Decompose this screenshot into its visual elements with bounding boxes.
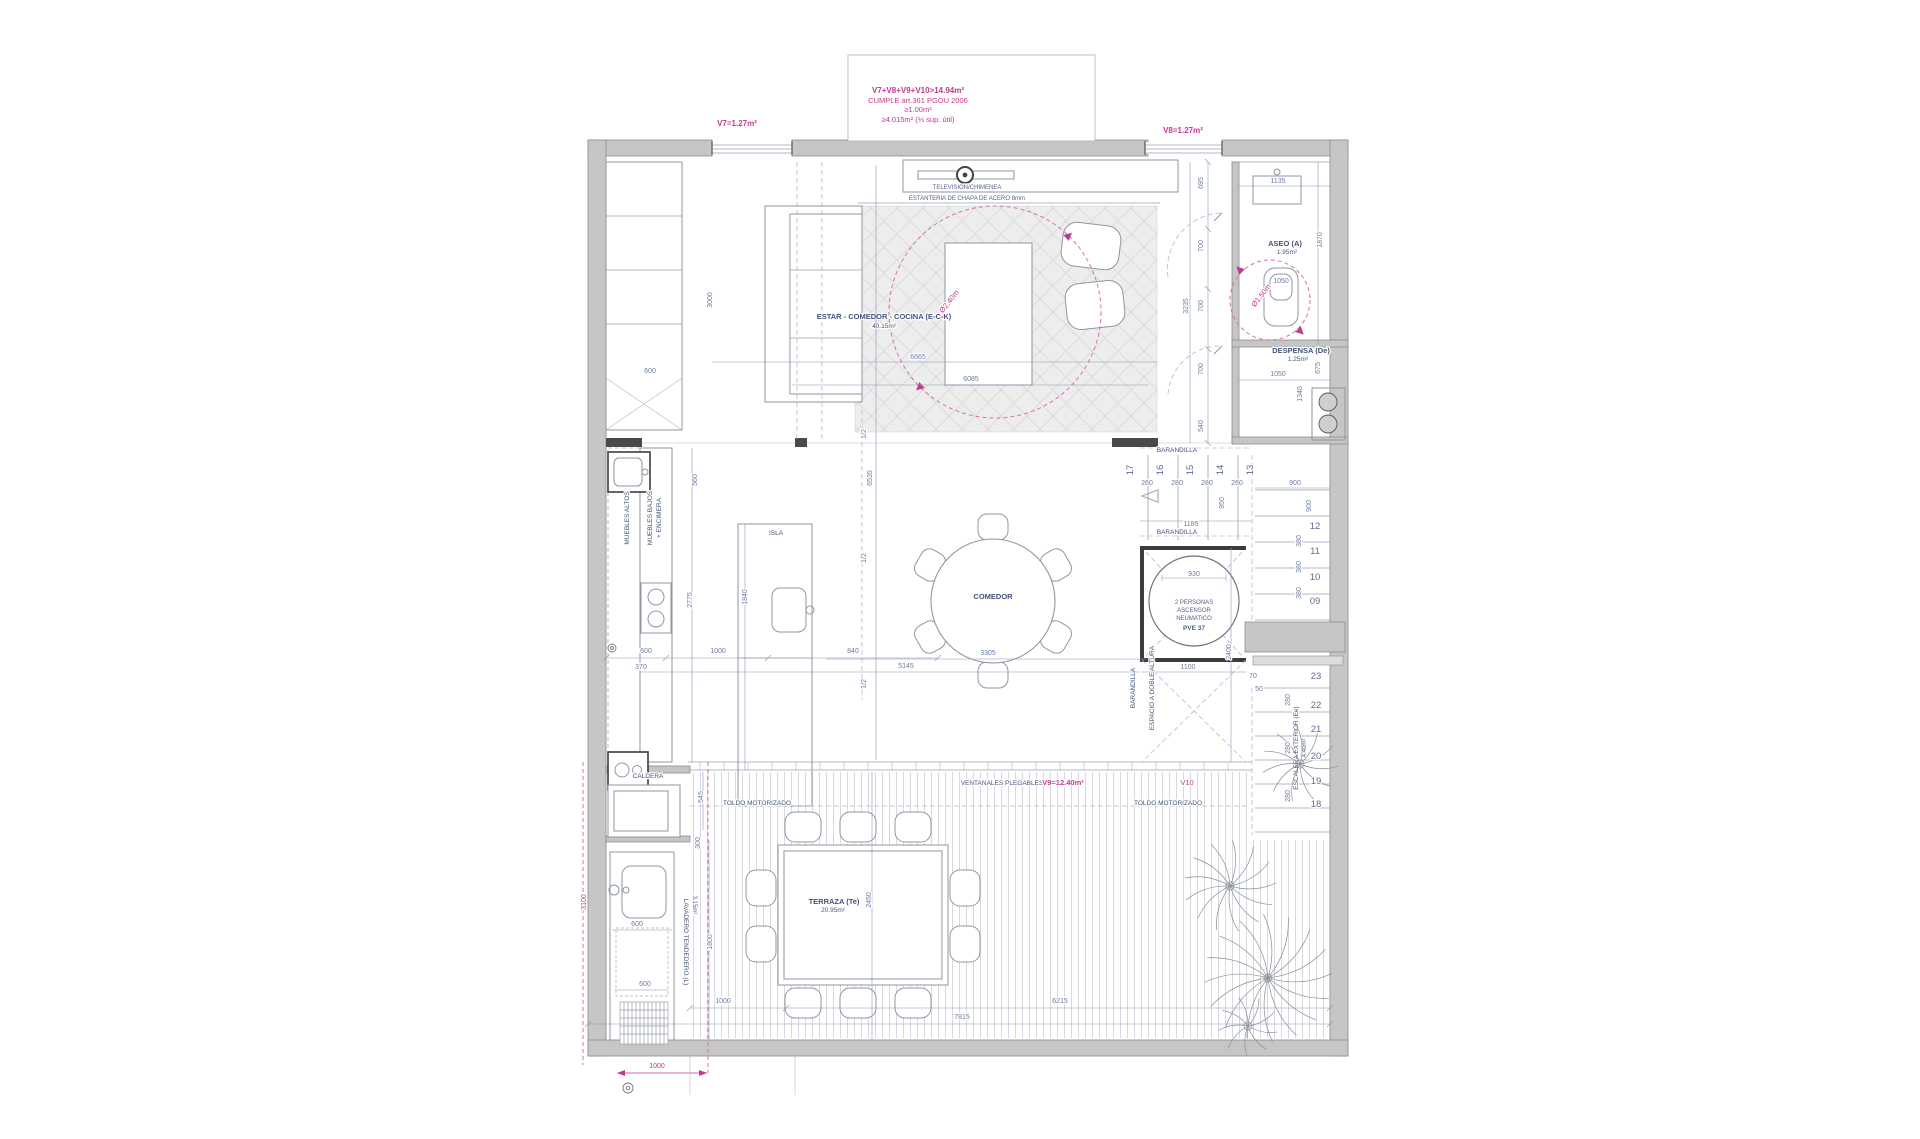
stair-number: 11 [1310,546,1320,557]
stair-number: 09 [1310,596,1321,607]
room-area-escalera: 4.40m² [1302,739,1308,758]
muebles-bajos-label: MUEBLES BAJOS [647,490,654,545]
dimension-label: 6215 [1052,998,1068,1005]
dimension-label: 1000 [710,648,726,655]
muebles-altos-label: MUEBLES ALTOS [624,491,631,545]
stair-number: 22 [1311,700,1322,711]
isla-label: ISLA [769,530,784,537]
dimension-label: 1/2 [861,429,868,439]
dimension-label: 280 [1285,742,1292,754]
dimension-label: 900 [1306,500,1313,512]
dimension-label: 600 [639,981,651,988]
stair-number: 10 [1310,572,1321,583]
room-label-aseo: ASEO (A) [1268,239,1302,248]
dimension-label: 7815 [954,1014,970,1021]
room-label-terraza: TERRAZA (Te) [809,897,860,906]
dimension-label: 695 [1198,177,1205,189]
elevator-line2: ASCENSOR [1177,608,1211,614]
barandilla-sup-label: BARANDILLA [1157,447,1198,454]
dimension-label: 2450 [866,892,873,908]
elevator-line1: 2 PERSONAS [1175,600,1213,606]
stair-number: 21 [1311,724,1322,735]
steel-shelf-label: ESTANTERIA DE CHAPA DE ACERO 8mm [909,196,1025,202]
window-v10-label: V10 [1180,778,1193,787]
dimension-label: 1340 [1297,386,1304,402]
dimension-label: 600 [631,921,643,928]
room-area-despensa: 1.25m² [1288,356,1309,363]
magenta-dim-1000 [617,1070,707,1076]
barandilla-inf-label: BARANDILLA [1157,529,1198,536]
dimension-label: 260 [1141,480,1153,487]
room-label-comedor: COMEDOR [973,592,1013,601]
stair-number: 15 [1185,465,1196,476]
dimension-label: 1050 [1270,371,1286,378]
lavadero-fixtures [609,852,674,1044]
wall-stub [1112,438,1158,447]
living-table [945,243,1032,385]
dimension-label: 280 [1285,694,1292,706]
room-label-lavadero: LAVADERO TENDEDERO (L) [682,899,689,986]
room-area-aseo: 1.95m² [1277,249,1298,256]
barandilla-vert-label: BARANDILLA [1130,667,1137,708]
dimension-label: 3100 [581,894,588,910]
dimension-label: 1800 [707,934,714,950]
dimension-label: 370 [635,664,647,671]
double-height-label: ESPACIO A DOBLE ALTURA [1149,645,1156,730]
dimension-label: 5145 [898,663,914,670]
stair-number: 23 [1311,671,1322,682]
caldera-unit [608,785,680,837]
room-label-living: ESTAR - COMEDOR - COCINA (E-C-K) [817,312,952,321]
dimension-label: 700 [1198,300,1205,312]
dimension-label: 300 [695,837,702,849]
dining-table [911,514,1075,688]
double-height-void [1142,660,1246,762]
dimension-label: 840 [847,648,859,655]
note-line4: ≥4.015m² (⅓ sup. útil) [882,115,955,124]
stair-number: 12 [1310,521,1321,532]
dimension-label: 1185 [1183,521,1198,528]
elevator-model: PVE 37 [1183,625,1205,632]
dimension-label: 930 [1188,571,1200,578]
dimension-label: 2775 [687,592,694,608]
dimension-label: 380 [1296,535,1303,547]
kitchen-island [738,524,814,806]
dimension-label: 50 [1255,686,1263,693]
dimension-label: 700 [1198,240,1205,252]
note-line2: CUMPLE art.361 PGOU 2006 [868,96,968,105]
toldo-right-label: TOLDO MOTORIZADO [1134,800,1202,807]
door-swings [1167,213,1224,394]
toldo-left-label: TOLDO MOTORIZADO [723,800,791,807]
dimension-label: 380 [1296,587,1303,599]
aseo-circle-diameter: Ø1.50m [1249,282,1273,309]
dimension-label: 1840 [742,589,749,605]
dimension-label: 260 [1231,480,1243,487]
room-area-lavadero: 3.15m² [691,896,697,915]
dimension-label: 1/2 [861,679,868,689]
window-compliance-note: V7+V8+V9+V10>14.94m² CUMPLE art.361 PGOU… [848,55,1095,141]
stair-number: 18 [1311,799,1322,810]
dimension-label: 600 [644,368,656,375]
ventanales-plegables-window [688,762,1252,770]
stair-number: 17 [1125,465,1136,476]
dimension-label: 70 [1249,673,1257,680]
floor-plan-canvas: V7+V8+V9+V10>14.94m² CUMPLE art.361 PGOU… [0,0,1920,1139]
room-label-despensa: DESPENSA (De) [1272,346,1330,355]
window-v9-label: V9=12.40m² [1042,778,1084,787]
encimera-label: + ENCIMERA [656,497,663,538]
dimension-label: 3235 [1183,298,1190,314]
stair-number: 20 [1311,751,1322,762]
caldera-label: CALDERA [633,773,664,780]
dimension-label: 280 [1171,480,1183,487]
dimension-label: 3000 [707,292,714,308]
dimension-label: 1000 [649,1063,665,1070]
elevator-line3: NEUMATICO [1176,616,1212,622]
dimension-label: 540 [1198,420,1205,432]
window-v7 [712,141,792,155]
dimension-label: 700 [1198,363,1205,375]
dimension-label: 600 [640,648,652,655]
window-v8 [1145,141,1222,155]
stair-number: 16 [1155,465,1166,476]
dimension-label: 950 [1219,497,1226,509]
dimension-label: 6535 [867,470,874,486]
wall-stub [606,438,642,447]
dimension-label: 6665 [910,354,926,361]
tv-chimney-label: TELEVISION/CHIMENEA [933,185,1002,191]
wall-stub [795,438,807,447]
note-line3: ≥1.00m² [904,105,932,114]
note-line1: V7+V8+V9+V10>14.94m² [872,86,964,95]
dimension-label: 675 [1315,362,1322,374]
dimension-label: 900 [1289,480,1301,487]
dimension-label: 3305 [980,650,996,657]
dimension-label: 380 [1296,561,1303,573]
dimension-label: 6085 [963,376,979,383]
stair-number: 14 [1215,465,1226,476]
dimension-label: 1/2 [861,553,868,563]
sofa [765,206,862,402]
dimension-label: 560 [692,474,699,486]
stair-number: 13 [1245,465,1256,476]
dimension-label: 280 [1201,480,1213,487]
dimension-label: 1050 [1273,278,1289,285]
dimension-label: 280 [1285,790,1292,802]
room-area-terraza: 20.95m² [821,907,846,914]
dimension-label: 1870 [1317,232,1324,248]
dimension-label: 1135 [1270,178,1285,185]
ventanales-label: VENTANALES PLEGABLES [961,780,1044,787]
window-v8-label: V8=1.27m² [1163,126,1203,135]
dimension-label: 545 [698,791,705,803]
dimension-label: 1000 [715,998,731,1005]
stair-number: 19 [1311,776,1322,787]
window-v7-label: V7=1.27m² [717,119,757,128]
wardrobe-left [606,162,682,430]
dimension-label: 2400 [1226,644,1233,660]
dimension-label: 1100 [1180,664,1195,671]
aseo-fixtures [1230,169,1310,340]
